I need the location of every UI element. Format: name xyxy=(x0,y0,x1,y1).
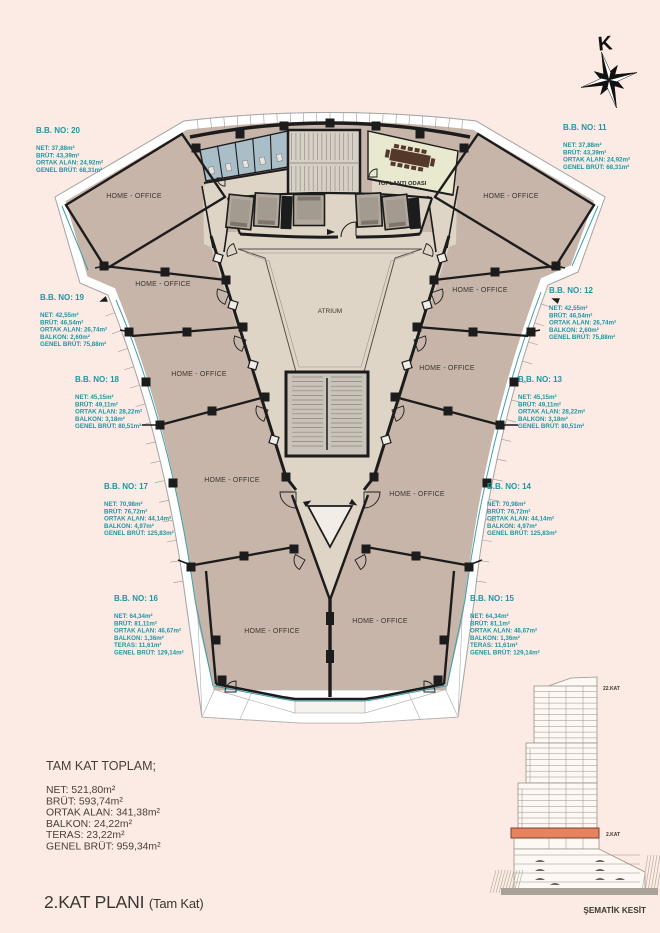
svg-text:TERAS: 11,61m²: TERAS: 11,61m² xyxy=(114,642,161,649)
svg-text:BRÜT: 81,11m²: BRÜT: 81,11m² xyxy=(114,620,157,627)
svg-text:2.KAT: 2.KAT xyxy=(606,832,620,838)
svg-text:BRÜT: 46,54m²: BRÜT: 46,54m² xyxy=(40,319,83,326)
svg-text:B.B. NO: 12: B.B. NO: 12 xyxy=(549,286,594,295)
svg-text:B.B. NO: 17: B.B. NO: 17 xyxy=(104,482,149,491)
svg-text:GENEL BRÜT: 959,34m²: GENEL BRÜT: 959,34m² xyxy=(46,841,161,853)
svg-text:BALKON: 3,18m²: BALKON: 3,18m² xyxy=(518,416,568,423)
svg-text:NET: 42,55m²: NET: 42,55m² xyxy=(549,305,588,312)
svg-text:B.B. NO: 11: B.B. NO: 11 xyxy=(563,123,607,132)
svg-text:BRÜT: 76,72m²: BRÜT: 76,72m² xyxy=(487,508,530,515)
svg-text:ORTAK ALAN: 44,14m²: ORTAK ALAN: 44,14m² xyxy=(487,516,554,523)
svg-text:B.B. NO: 19: B.B. NO: 19 xyxy=(40,293,85,302)
svg-text:BALKON: 1,36m²: BALKON: 1,36m² xyxy=(114,635,164,642)
svg-text:NET: 42,55m²: NET: 42,55m² xyxy=(40,312,79,319)
svg-text:TOPLANTI ODASI: TOPLANTI ODASI xyxy=(378,181,427,187)
svg-text:GENEL BRÜT: 80,51m²: GENEL BRÜT: 80,51m² xyxy=(518,423,584,430)
svg-text:NET: 37,88m²: NET: 37,88m² xyxy=(563,142,602,149)
svg-text:HOME - OFFICE: HOME - OFFICE xyxy=(419,365,475,372)
svg-text:HOME - OFFICE: HOME - OFFICE xyxy=(135,281,191,288)
svg-text:NET: 64,34m²: NET: 64,34m² xyxy=(470,613,509,620)
svg-text:ORTAK ALAN: 341,38m²: ORTAK ALAN: 341,38m² xyxy=(46,808,161,819)
svg-text:GENEL BRÜT: 75,88m²: GENEL BRÜT: 75,88m² xyxy=(549,334,615,341)
svg-text:NET: 70,98m²: NET: 70,98m² xyxy=(104,501,143,508)
svg-text:GENEL BRÜT: 125,83m²: GENEL BRÜT: 125,83m² xyxy=(487,530,557,537)
svg-text:BRÜT: 49,11m²: BRÜT: 49,11m² xyxy=(75,401,118,408)
svg-text:ORTAK ALAN: 46,67m²: ORTAK ALAN: 46,67m² xyxy=(114,628,181,635)
svg-text:HOME - OFFICE: HOME - OFFICE xyxy=(204,477,260,484)
svg-text:NET: 45,15m²: NET: 45,15m² xyxy=(75,394,114,401)
svg-text:TAM KAT TOPLAM;: TAM KAT TOPLAM; xyxy=(46,759,156,773)
svg-text:HOME - OFFICE: HOME - OFFICE xyxy=(483,193,539,200)
svg-text:ORTAK ALAN: 24,92m²: ORTAK ALAN: 24,92m² xyxy=(36,160,103,167)
svg-text:HOME - OFFICE: HOME - OFFICE xyxy=(106,193,162,200)
svg-text:ORTAK ALAN: 24,92m²: ORTAK ALAN: 24,92m² xyxy=(563,157,630,164)
svg-text:GENEL BRÜT: 129,14m²: GENEL BRÜT: 129,14m² xyxy=(470,650,540,657)
svg-text:K: K xyxy=(597,32,614,55)
svg-text:ORTAK ALAN: 26,74m²: ORTAK ALAN: 26,74m² xyxy=(40,327,107,334)
svg-text:GENEL BRÜT: 129,14m²: GENEL BRÜT: 129,14m² xyxy=(114,650,184,657)
svg-text:ORTAK ALAN: 28,22m²: ORTAK ALAN: 28,22m² xyxy=(75,409,142,416)
svg-text:GENEL BRÜT: 75,88m²: GENEL BRÜT: 75,88m² xyxy=(40,341,106,348)
svg-text:BRÜT: 76,72m²: BRÜT: 76,72m² xyxy=(104,508,147,515)
svg-text:ATRIUM: ATRIUM xyxy=(318,308,342,315)
svg-text:B.B. NO: 16: B.B. NO: 16 xyxy=(114,594,159,603)
svg-text:BALKON: 4,97m²: BALKON: 4,97m² xyxy=(104,523,154,530)
svg-text:ŞEMATİK KESİT: ŞEMATİK KESİT xyxy=(583,905,646,915)
svg-text:HOME - OFFICE: HOME - OFFICE xyxy=(352,618,408,625)
svg-text:B.B. NO: 20: B.B. NO: 20 xyxy=(36,126,81,135)
svg-text:BRÜT: 49,11m²: BRÜT: 49,11m² xyxy=(518,401,561,408)
svg-text:TERAS: 23,22m²: TERAS: 23,22m² xyxy=(46,830,125,841)
svg-text:HOME - OFFICE: HOME - OFFICE xyxy=(171,371,227,378)
svg-text:NET: 37,88m²: NET: 37,88m² xyxy=(36,145,75,152)
svg-text:GENEL BRÜT: 125,83m²: GENEL BRÜT: 125,83m² xyxy=(104,530,174,537)
svg-text:ORTAK ALAN: 44,14m²: ORTAK ALAN: 44,14m² xyxy=(104,516,171,523)
svg-text:BALKON: 1,36m²: BALKON: 1,36m² xyxy=(470,635,520,642)
svg-text:22.KAT: 22.KAT xyxy=(603,686,620,692)
svg-text:BALKON: 3,18m²: BALKON: 3,18m² xyxy=(75,416,125,423)
svg-text:BALKON: 2,60m²: BALKON: 2,60m² xyxy=(40,334,90,341)
svg-text:BALKON: 2,60m²: BALKON: 2,60m² xyxy=(549,327,599,334)
svg-text:TERAS: 11,61m²: TERAS: 11,61m² xyxy=(470,642,517,649)
svg-text:BRÜT: 46,54m²: BRÜT: 46,54m² xyxy=(549,312,592,319)
svg-text:GENEL BRÜT: 68,31m²: GENEL BRÜT: 68,31m² xyxy=(36,167,102,174)
svg-text:ORTAK ALAN: 28,22m²: ORTAK ALAN: 28,22m² xyxy=(518,409,585,416)
svg-text:ORTAK ALAN: 46,67m²: ORTAK ALAN: 46,67m² xyxy=(470,628,537,635)
svg-text:NET: 45,15m²: NET: 45,15m² xyxy=(518,394,557,401)
svg-text:NET: 64,34m²: NET: 64,34m² xyxy=(114,613,153,620)
svg-text:B.B. NO: 13: B.B. NO: 13 xyxy=(518,375,563,384)
svg-text:BALKON: 4,97m²: BALKON: 4,97m² xyxy=(487,523,537,530)
svg-text:NET: 70,98m²: NET: 70,98m² xyxy=(487,501,526,508)
svg-text:BALKON: 24,22m²: BALKON: 24,22m² xyxy=(46,819,133,830)
svg-text:GENEL BRÜT: 68,31m²: GENEL BRÜT: 68,31m² xyxy=(563,164,629,171)
svg-text:HOME - OFFICE: HOME - OFFICE xyxy=(452,287,508,294)
svg-text:BRÜT: 81,1m²: BRÜT: 81,1m² xyxy=(470,620,510,627)
svg-text:HOME - OFFICE: HOME - OFFICE xyxy=(244,628,300,635)
svg-text:B.B. NO: 15: B.B. NO: 15 xyxy=(470,594,515,603)
svg-text:BRÜT: 43,39m²: BRÜT: 43,39m² xyxy=(36,152,79,159)
svg-text:B.B. NO: 18: B.B. NO: 18 xyxy=(75,375,120,384)
svg-text:HOME - OFFICE: HOME - OFFICE xyxy=(389,491,445,498)
svg-text:ORTAK ALAN: 26,74m²: ORTAK ALAN: 26,74m² xyxy=(549,320,616,327)
svg-text:NET: 521,80m²: NET: 521,80m² xyxy=(46,785,116,796)
svg-text:B.B. NO: 14: B.B. NO: 14 xyxy=(487,482,532,491)
svg-text:GENEL BRÜT: 80,51m²: GENEL BRÜT: 80,51m² xyxy=(75,423,141,430)
svg-text:BRÜT: 43,39m²: BRÜT: 43,39m² xyxy=(563,149,606,156)
svg-text:BRÜT: 593,74m²: BRÜT: 593,74m² xyxy=(46,795,123,807)
